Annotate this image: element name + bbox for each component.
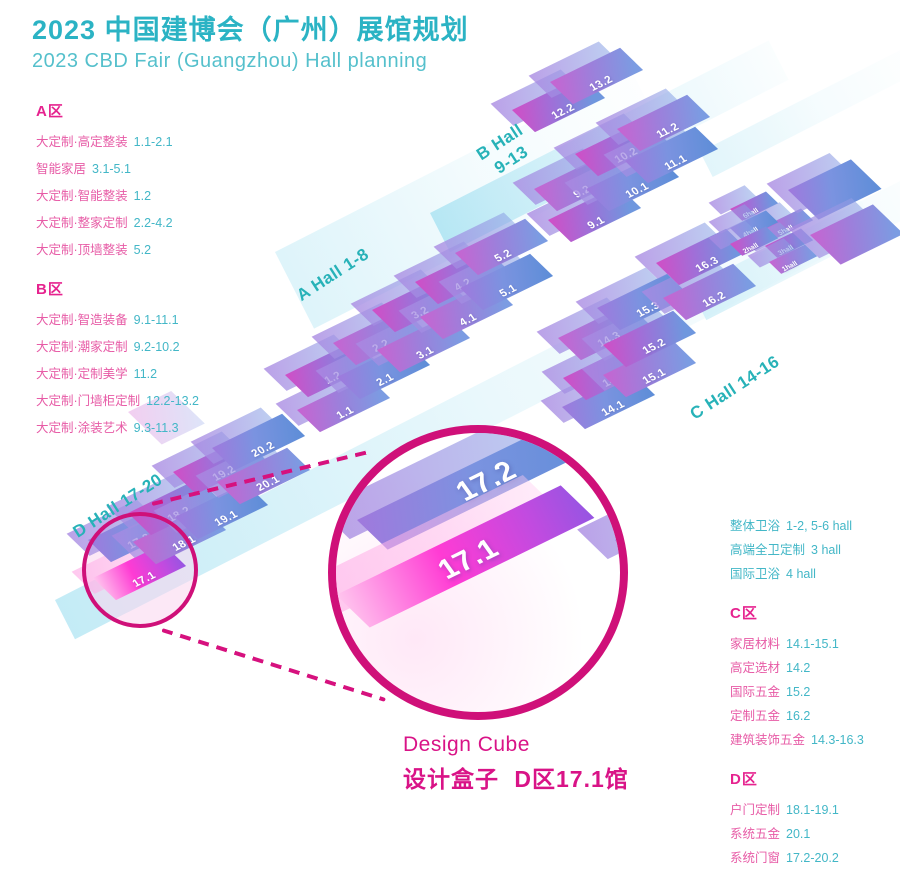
legend-item: 定制五金16.2 (730, 705, 898, 724)
legend-item-name: 系统五金 (730, 827, 780, 841)
legend-item: 国际五金15.2 (730, 681, 898, 700)
legend-item-name: 国际五金 (730, 685, 780, 699)
legend-item: 大定制·智造装备9.1-11.1 (36, 309, 276, 328)
legend-item-value: 14.1-15.1 (786, 637, 839, 651)
legend-section-C区: C区家居材料14.1-15.1高定选材14.2国际五金15.2定制五金16.2建… (730, 602, 898, 748)
legend-zones-cd: 整体卫浴1-2, 5-6 hall高端全卫定制3 hall国际卫浴4 hallC… (730, 515, 898, 886)
legend-item-value: 5.2 (134, 243, 151, 257)
hall-tile-label: 9.1 (584, 215, 608, 231)
legend-item-value: 16.2 (786, 709, 810, 723)
hall-tile-label: 3.1 (413, 345, 437, 361)
legend-item-value: 9.2-10.2 (134, 340, 180, 354)
legend-item-name: 高定选材 (730, 661, 780, 675)
page-title-zh: 2023 中国建博会（广州）展馆规划 (32, 8, 469, 47)
legend-item-name: 整体卫浴 (730, 519, 780, 533)
legend-item: 整体卫浴1-2, 5-6 hall (730, 515, 898, 534)
legend-item-value: 9.1-11.1 (134, 313, 179, 327)
legend-item-name: 大定制·智造装备 (36, 313, 128, 327)
legend-item: 大定制·顶墙整装5.2 (36, 239, 276, 258)
legend-item-value: 2.2-4.2 (134, 216, 173, 230)
legend-item: 大定制·潮家定制9.2-10.2 (36, 336, 276, 355)
hall-tile-label: 15.1 (639, 367, 669, 386)
legend-item: 大定制·高定整装1.1-2.1 (36, 131, 276, 150)
legend-item: 大定制·门墙柜定制12.2-13.2 (36, 390, 276, 409)
legend-section-D区: D区户门定制18.1-19.1系统五金20.1系统门窗17.2-20.2 (730, 768, 898, 866)
legend-section-header: B区 (36, 278, 276, 299)
legend-section-A区: A区大定制·高定整装1.1-2.1智能家居3.1-5.1大定制·智能整装1.2大… (36, 100, 276, 258)
legend-item-name: 大定制·智能整装 (36, 189, 128, 203)
title-block: 2023 中国建博会（广州）展馆规划 2023 CBD Fair (Guangz… (32, 8, 469, 73)
legend-item: 大定制·智能整装1.2 (36, 185, 276, 204)
legend-section-header: D区 (730, 768, 898, 789)
hall-planning-poster: 2023 中国建博会（广州）展馆规划 2023 CBD Fair (Guangz… (0, 0, 900, 788)
legend-item: 户门定制18.1-19.1 (730, 799, 898, 818)
legend-item: 系统门窗17.2-20.2 (730, 847, 898, 866)
hall-tile-label: 10.1 (622, 181, 652, 200)
legend-item: 国际卫浴4 hall (730, 563, 898, 582)
legend-item-value: 1-2, 5-6 hall (786, 519, 852, 533)
legend-item: 高端全卫定制3 hall (730, 539, 898, 558)
legend-item-name: 定制五金 (730, 709, 780, 723)
legend-item-name: 大定制·顶墙整装 (36, 243, 128, 257)
legend-item-value: 3.1-5.1 (92, 162, 131, 176)
legend-item: 智能家居3.1-5.1 (36, 158, 276, 177)
callout-zoom-circle: 17.217.1 (328, 425, 628, 720)
legend-item-name: 大定制·高定整装 (36, 135, 128, 149)
legend-item-value: 20.1 (786, 827, 810, 841)
legend-item-value: 17.2-20.2 (786, 851, 839, 865)
legend-item-name: 智能家居 (36, 162, 86, 176)
legend-item: 建筑装饰五金14.3-16.3 (730, 729, 898, 748)
hall-tile-label: 5.1 (496, 283, 520, 299)
legend-item-value: 3 hall (811, 543, 841, 557)
legend-item: 大定制·整家定制2.2-4.2 (36, 212, 276, 231)
legend-item-value: 15.2 (786, 685, 810, 699)
legend-item-name: 建筑装饰五金 (730, 733, 805, 747)
legend-section-B区: B区大定制·智造装备9.1-11.1大定制·潮家定制9.2-10.2大定制·定制… (36, 278, 276, 436)
hall-tile-label: 11.1 (661, 153, 690, 172)
legend-item: 系统五金20.1 (730, 823, 898, 842)
legend-item-value: 18.1-19.1 (786, 803, 839, 817)
legend-item-name: 大定制·潮家定制 (36, 340, 128, 354)
legend-item-name: 大定制·门墙柜定制 (36, 394, 140, 408)
legend-item-value: 12.2-13.2 (146, 394, 199, 408)
legend-item-name: 国际卫浴 (730, 567, 780, 581)
legend-item-value: 9.3-11.3 (134, 421, 179, 435)
callout-caption: Design Cube 设计盒子 D区17.1馆 (403, 733, 629, 794)
hall-tile-label: 1.1 (333, 405, 357, 421)
legend-zones-ab: A区大定制·高定整装1.1-2.1智能家居3.1-5.1大定制·智能整装1.2大… (36, 100, 276, 456)
legend-item-name: 大定制·整家定制 (36, 216, 128, 230)
legend-item-value: 1.1-2.1 (134, 135, 173, 149)
legend-item: 家居材料14.1-15.1 (730, 633, 898, 652)
legend-section-header: C区 (730, 602, 898, 623)
legend-item: 高定选材14.2 (730, 657, 898, 676)
legend-item-name: 大定制·涂装艺术 (36, 421, 128, 435)
legend-item-name: 家居材料 (730, 637, 780, 651)
hall-tile-label: 17.1 (429, 534, 509, 585)
legend-item: 大定制·定制美学11.2 (36, 363, 276, 382)
callout-caption-zh: 设计盒子 D区17.1馆 (403, 760, 629, 794)
callout-caption-en: Design Cube (403, 733, 629, 757)
legend-item-value: 11.2 (134, 367, 157, 381)
legend-item-value: 4 hall (786, 567, 816, 581)
legend-item-value: 1.2 (134, 189, 151, 203)
legend-item-name: 户门定制 (730, 803, 780, 817)
legend-item-name: 系统门窗 (730, 851, 780, 865)
legend-item-value: 14.2 (786, 661, 810, 675)
legend-item-name: 大定制·定制美学 (36, 367, 128, 381)
hall-tile-label: 2.1 (373, 372, 397, 388)
legend-section-halls: 整体卫浴1-2, 5-6 hall高端全卫定制3 hall国际卫浴4 hall (730, 515, 898, 582)
legend-item-name: 高端全卫定制 (730, 543, 805, 557)
page-title-en: 2023 CBD Fair (Guangzhou) Hall planning (32, 50, 469, 73)
callout-source-circle (82, 512, 198, 628)
legend-section-header: A区 (36, 100, 276, 121)
legend-item-value: 14.3-16.3 (811, 733, 864, 747)
hall-tile-label: 14.1 (598, 399, 628, 418)
hall-tile-label: 4.1 (456, 312, 480, 328)
legend-item: 大定制·涂装艺术9.3-11.3 (36, 417, 276, 436)
